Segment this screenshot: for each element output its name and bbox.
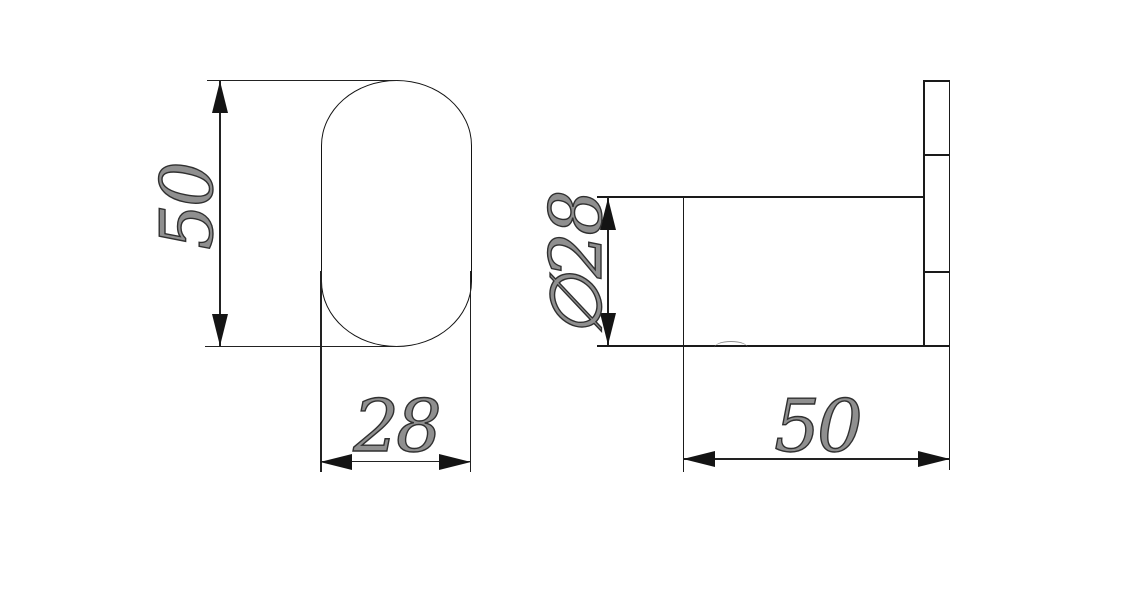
extension-line-bottom: [205, 346, 398, 347]
cylinder-bottom-line: [597, 345, 950, 346]
extension-line-left: [320, 271, 321, 472]
extension-line-top: [207, 80, 398, 81]
cylinder-left-edge: [683, 197, 684, 472]
plate-division-line-upper: [924, 154, 949, 155]
extension-line-right: [470, 271, 471, 472]
dimension-label-width: 28: [326, 396, 466, 456]
plate-division-line-lower: [924, 271, 949, 272]
dimension-label-height: 50: [157, 137, 217, 277]
tangent-arc-mark: [714, 341, 748, 348]
dimension-label-diameter: ∅28: [546, 198, 606, 338]
arrowhead-down-icon: [212, 314, 228, 346]
arrowhead-right-icon: [918, 451, 950, 467]
plate-right-edge: [949, 81, 950, 470]
arrowhead-up-icon: [212, 81, 228, 113]
plate-left-edge: [923, 81, 924, 346]
plate-top-edge: [923, 80, 950, 81]
technical-drawing-canvas: 50 28 ∅28 50: [0, 0, 1134, 596]
obround-outline: [321, 80, 472, 347]
arrowhead-left-icon: [683, 451, 715, 467]
cylinder-top-line: [597, 196, 924, 197]
dimension-label-length: 50: [747, 396, 887, 456]
